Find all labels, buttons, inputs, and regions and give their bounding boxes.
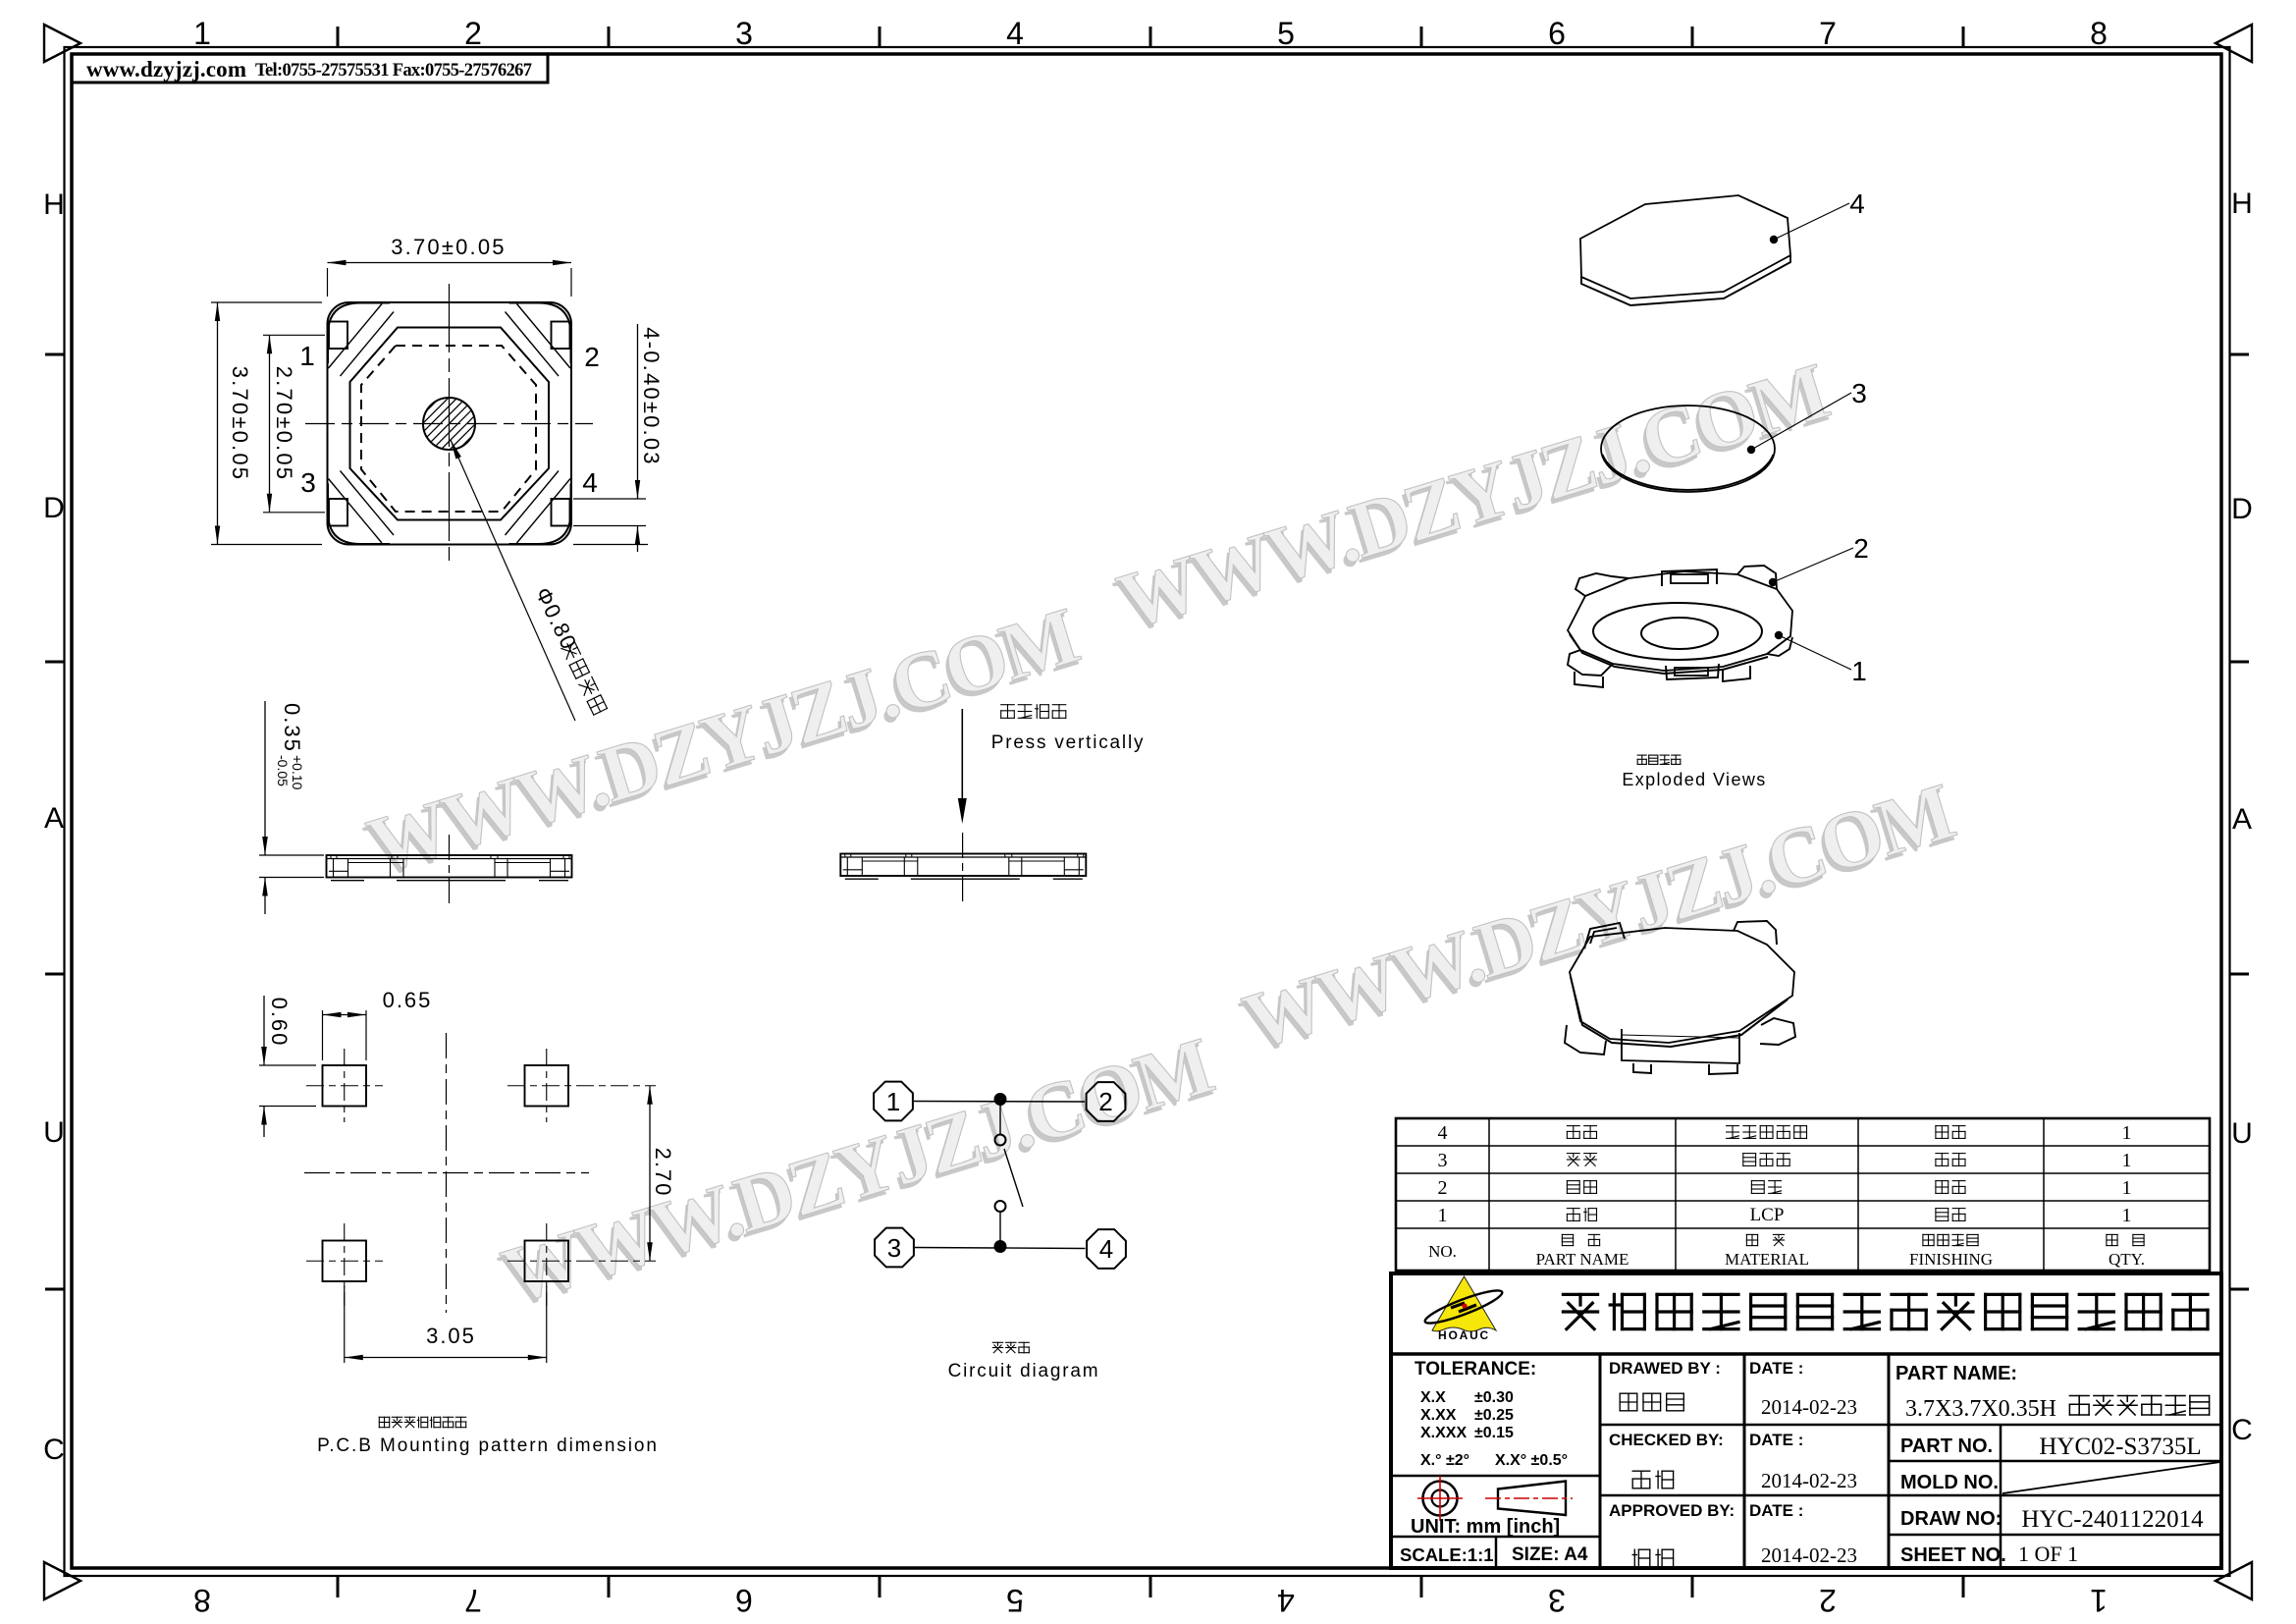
svg-text:2014-02-23: 2014-02-23 xyxy=(1761,1395,1857,1419)
svg-text:X.XX: X.XX xyxy=(1420,1407,1457,1424)
svg-text:0.65: 0.65 xyxy=(383,988,433,1012)
svg-text:MATERIAL: MATERIAL xyxy=(1725,1250,1809,1269)
svg-text:A: A xyxy=(2232,803,2252,836)
svg-text:DATE :: DATE : xyxy=(1749,1359,1803,1378)
svg-text:6: 6 xyxy=(1548,16,1566,51)
svg-text:3.70±0.05: 3.70±0.05 xyxy=(228,366,252,482)
svg-text:MOLD NO.: MOLD NO. xyxy=(1900,1472,1999,1493)
svg-text:SHEET NO.: SHEET NO. xyxy=(1900,1544,2006,1566)
svg-text:X.X: X.X xyxy=(1420,1389,1446,1406)
svg-text:UNIT: mm [inch]: UNIT: mm [inch] xyxy=(1411,1516,1560,1538)
svg-text:Press vertically: Press vertically xyxy=(991,732,1146,753)
svg-text:0.60: 0.60 xyxy=(267,998,292,1048)
svg-text:1: 1 xyxy=(2122,1150,2132,1171)
svg-text:4: 4 xyxy=(1277,1583,1295,1618)
svg-text:-0.05: -0.05 xyxy=(275,755,291,786)
svg-text:2.70: 2.70 xyxy=(651,1148,675,1198)
svg-text:U: U xyxy=(43,1116,65,1149)
svg-text:0.35: 0.35 xyxy=(280,703,304,753)
svg-text:TOLERANCE:: TOLERANCE: xyxy=(1415,1359,1536,1380)
svg-text:3: 3 xyxy=(1438,1150,1448,1171)
svg-text:2014-02-23: 2014-02-23 xyxy=(1761,1543,1857,1567)
svg-text:3: 3 xyxy=(300,467,316,498)
svg-text:X.XXX: X.XXX xyxy=(1420,1425,1467,1441)
svg-text:4: 4 xyxy=(1438,1122,1448,1144)
svg-text:3: 3 xyxy=(1548,1583,1566,1618)
svg-text:1: 1 xyxy=(2122,1122,2132,1144)
svg-text:2: 2 xyxy=(1853,533,1869,564)
svg-text:2: 2 xyxy=(464,16,482,51)
svg-text:2.70±0.05: 2.70±0.05 xyxy=(272,366,296,482)
svg-text:SIZE: A4: SIZE: A4 xyxy=(1512,1544,1588,1565)
svg-text:7: 7 xyxy=(1819,16,1837,51)
svg-text:X.° ±2°: X.° ±2° xyxy=(1420,1452,1469,1469)
svg-text:SCALE:1:1: SCALE:1:1 xyxy=(1400,1544,1494,1565)
svg-text:6: 6 xyxy=(735,1583,753,1618)
svg-text:HYC-2401122014: HYC-2401122014 xyxy=(2021,1506,2204,1533)
svg-text:4: 4 xyxy=(1099,1234,1113,1264)
svg-text:CHECKED BY:: CHECKED BY: xyxy=(1609,1431,1724,1449)
svg-text:2: 2 xyxy=(1819,1583,1837,1618)
svg-text:1: 1 xyxy=(1438,1205,1448,1226)
svg-text:±0.25: ±0.25 xyxy=(1474,1407,1514,1424)
svg-text:1: 1 xyxy=(2090,1583,2108,1618)
svg-text:P.C.B Mounting pattern dimensi: P.C.B Mounting pattern dimension xyxy=(317,1435,659,1456)
svg-text:DRAWED BY :: DRAWED BY : xyxy=(1609,1359,1721,1378)
svg-text:2: 2 xyxy=(1438,1177,1448,1199)
svg-text:4-0.40±0.03: 4-0.40±0.03 xyxy=(639,327,664,465)
svg-text:4: 4 xyxy=(582,467,598,498)
svg-text:1: 1 xyxy=(299,341,315,371)
svg-text:1: 1 xyxy=(886,1087,900,1116)
svg-text:4: 4 xyxy=(1849,189,1865,219)
svg-text:C: C xyxy=(2231,1414,2253,1446)
svg-text:HYC02-S3735L: HYC02-S3735L xyxy=(2039,1434,2201,1460)
svg-text:+0.10: +0.10 xyxy=(290,755,305,790)
svg-text:1: 1 xyxy=(2122,1205,2132,1226)
svg-text:PART NAME: PART NAME xyxy=(1536,1250,1629,1269)
svg-text:U: U xyxy=(2231,1117,2253,1150)
svg-text:5: 5 xyxy=(1006,1583,1024,1618)
svg-text:A: A xyxy=(44,802,64,835)
svg-text:DATE :: DATE : xyxy=(1749,1431,1803,1449)
svg-text:1: 1 xyxy=(1851,656,1867,686)
svg-text:APPROVED BY:: APPROVED BY: xyxy=(1609,1501,1735,1520)
svg-text:±0.30: ±0.30 xyxy=(1474,1389,1514,1406)
svg-text:DRAW NO:: DRAW NO: xyxy=(1900,1508,2002,1530)
svg-text:D: D xyxy=(43,492,65,524)
svg-text:HOAUC: HOAUC xyxy=(1438,1328,1490,1342)
svg-text:LCP: LCP xyxy=(1750,1205,1785,1225)
svg-text:7: 7 xyxy=(464,1583,482,1618)
svg-text:2014-02-23: 2014-02-23 xyxy=(1761,1469,1857,1492)
svg-text:H: H xyxy=(43,189,65,221)
svg-text:PART NO.: PART NO. xyxy=(1900,1435,1993,1457)
svg-text:NO.: NO. xyxy=(1428,1242,1457,1261)
svg-text:H: H xyxy=(2231,188,2253,220)
svg-text:3.05: 3.05 xyxy=(426,1324,476,1348)
svg-text:1: 1 xyxy=(193,16,211,51)
svg-text:3: 3 xyxy=(1851,378,1867,408)
svg-text:±0.15: ±0.15 xyxy=(1474,1425,1514,1441)
svg-text:3.70±0.05: 3.70±0.05 xyxy=(391,235,507,259)
svg-text:8: 8 xyxy=(2090,16,2108,51)
svg-text:DATE :: DATE : xyxy=(1749,1501,1803,1520)
svg-text:2: 2 xyxy=(584,342,600,372)
svg-text:X.X° ±0.5°: X.X° ±0.5° xyxy=(1495,1452,1568,1469)
svg-text:8: 8 xyxy=(193,1583,211,1618)
svg-text:3.7X3.7X0.35H: 3.7X3.7X0.35H xyxy=(1905,1396,2056,1422)
svg-text:FINISHING: FINISHING xyxy=(1909,1250,1993,1269)
svg-text:PART NAME:: PART NAME: xyxy=(1896,1363,2017,1384)
svg-text:2: 2 xyxy=(1098,1087,1112,1116)
svg-text:QTY.: QTY. xyxy=(2109,1250,2145,1269)
svg-text:www.dzyjzj.com: www.dzyjzj.com xyxy=(86,57,246,81)
svg-text:Tel:0755-27575531 Fax:0755-27: Tel:0755-27575531 Fax:0755-27576267 xyxy=(255,61,532,81)
svg-text:C: C xyxy=(43,1434,65,1466)
svg-text:5: 5 xyxy=(1277,16,1295,51)
svg-text:Circuit diagram: Circuit diagram xyxy=(948,1361,1100,1381)
svg-text:Exploded Views: Exploded Views xyxy=(1622,770,1766,789)
svg-text:1 OF 1: 1 OF 1 xyxy=(2018,1542,2078,1566)
svg-text:3: 3 xyxy=(887,1233,901,1263)
svg-text:1: 1 xyxy=(2122,1177,2132,1199)
svg-text:3: 3 xyxy=(735,16,753,51)
svg-text:4: 4 xyxy=(1006,16,1024,51)
svg-text:D: D xyxy=(2231,493,2253,525)
